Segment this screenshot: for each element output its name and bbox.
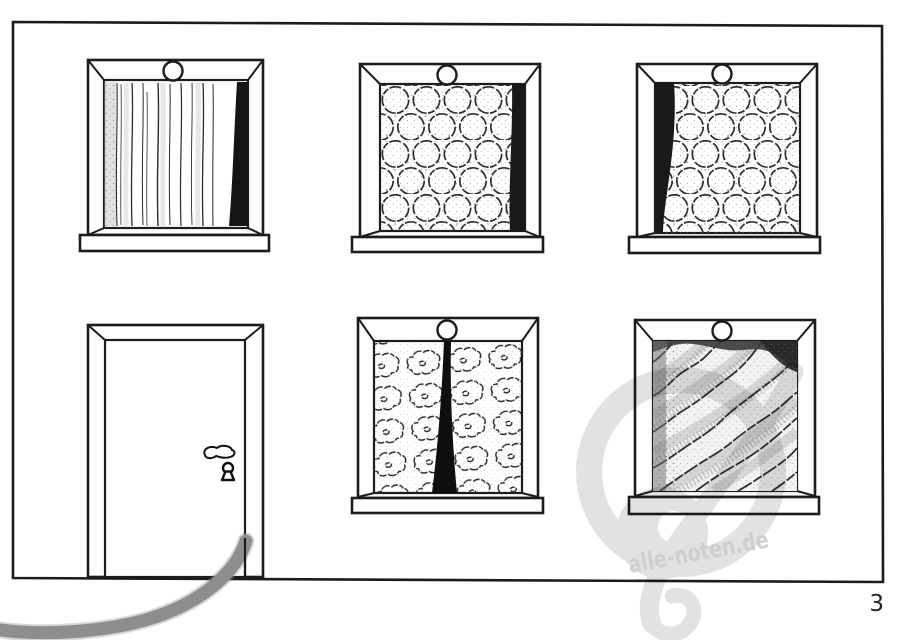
book-page: 3 alle-noten.de bbox=[0, 0, 914, 640]
watermark: alle-noten.de bbox=[0, 0, 914, 640]
treble-clef-icon bbox=[589, 372, 794, 634]
